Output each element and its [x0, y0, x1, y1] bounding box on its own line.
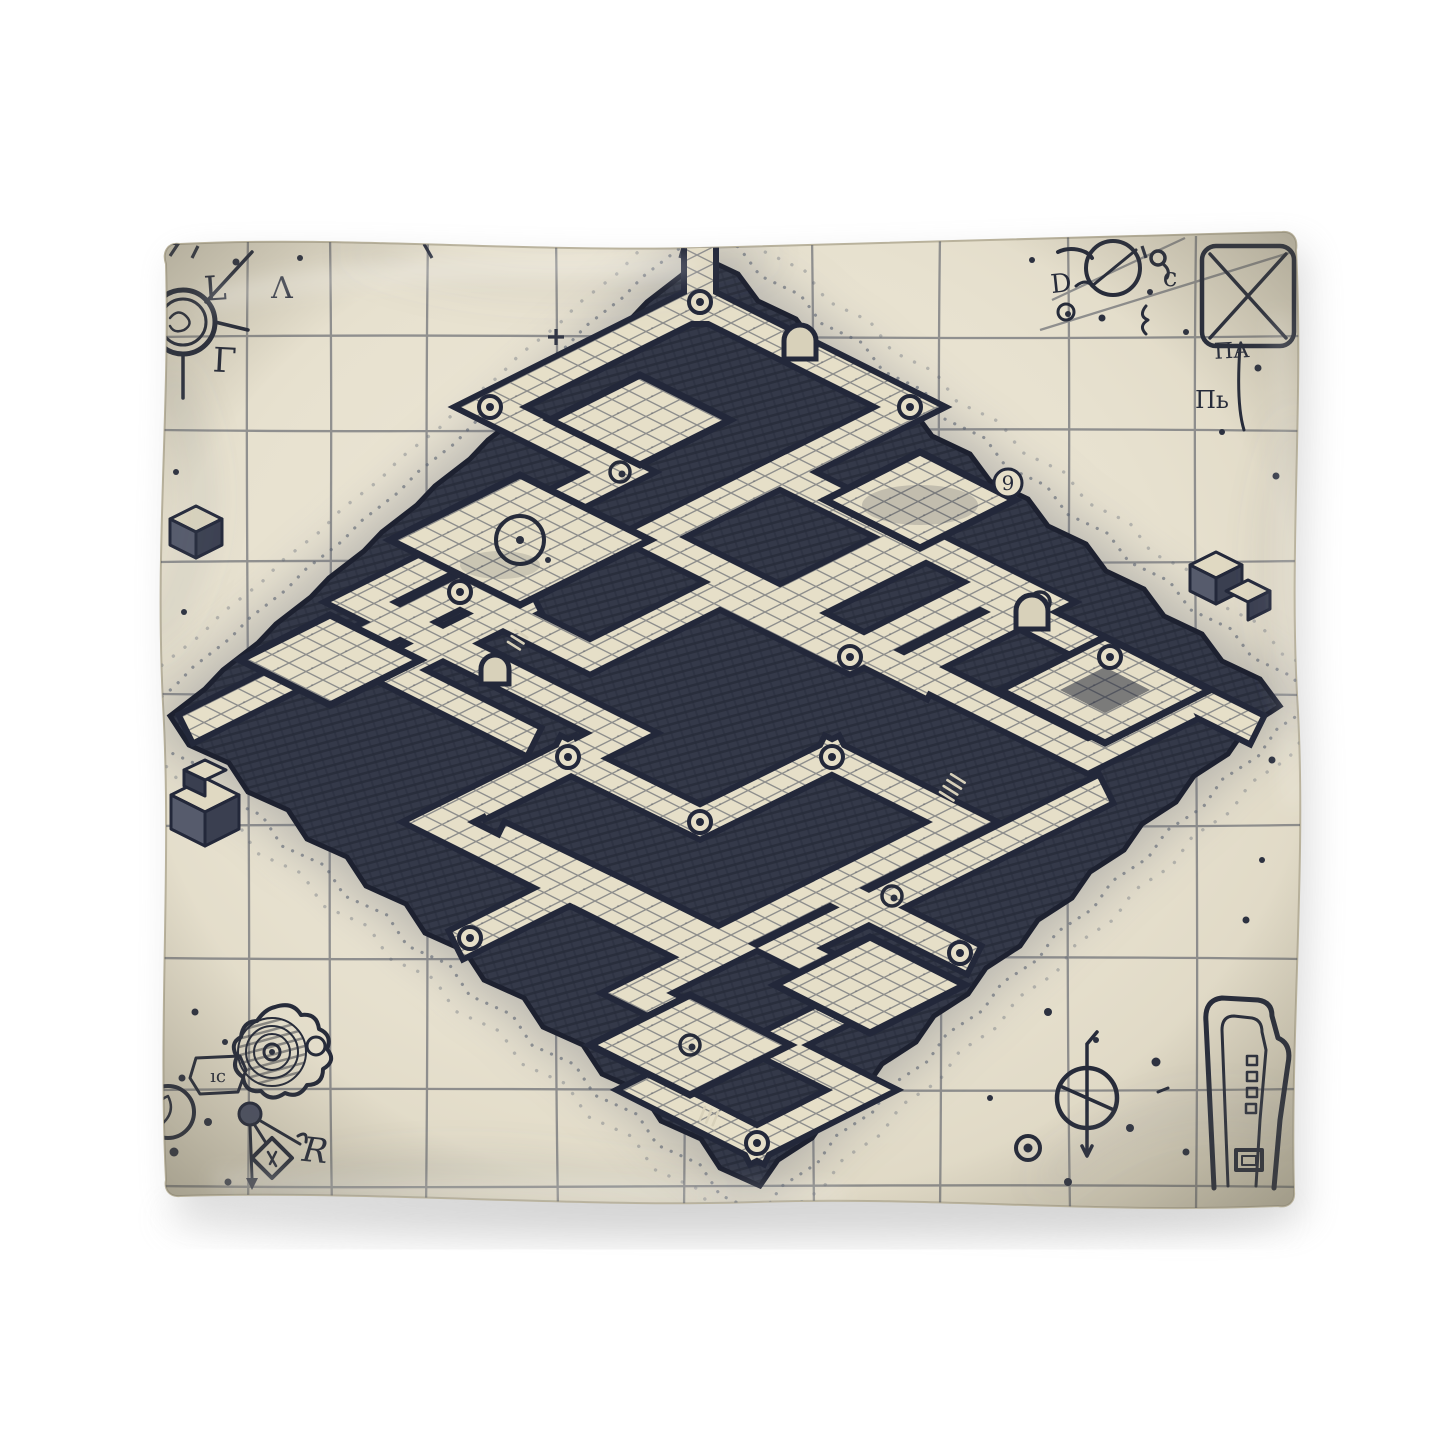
- fabric-shading: [130, 210, 1330, 1240]
- comforter-photo: 9: [0, 0, 1445, 1445]
- product-photo-canvas: 9: [0, 0, 1445, 1445]
